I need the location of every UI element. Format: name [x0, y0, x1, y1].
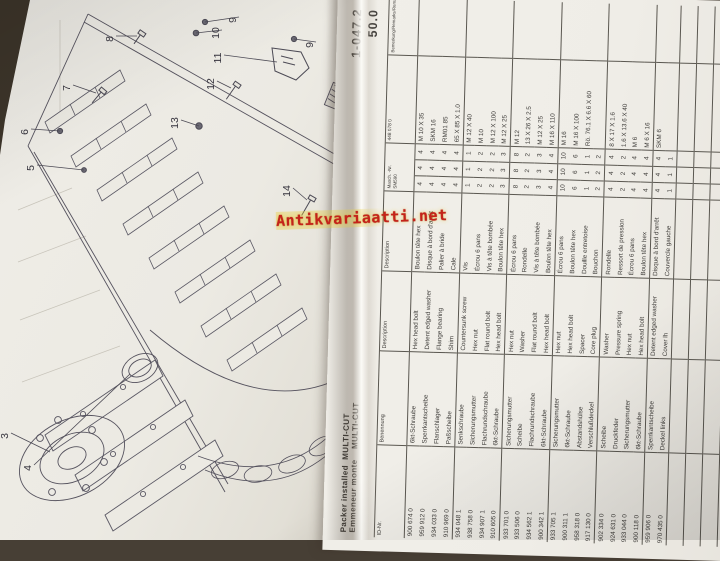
empty-cell [693, 168, 709, 184]
photo-of-open-parts-manual: 34567891011121314915 Packer installed MU… [0, 0, 720, 540]
part-qty-cell: 4 [426, 177, 438, 193]
part-qty-cell: 6 [569, 181, 581, 197]
header-english: Description [380, 271, 411, 352]
empty-cell [711, 152, 720, 168]
empty-cell [710, 184, 720, 200]
part-french-cell: Bouchon [590, 197, 603, 277]
callout-label: 9 [304, 42, 316, 48]
header-machine-number: Masch. -Nr. SM590 [384, 143, 414, 192]
part-french-cell: Boulon tête hex [495, 195, 508, 275]
part-qty-cell: 4 [450, 161, 461, 177]
part-qty-cell: 4 [652, 183, 664, 199]
part-qty-cell: 2 [474, 178, 486, 194]
empty-cell [700, 454, 719, 546]
part-qty-cell: 8 [509, 179, 521, 195]
empty-cell [669, 359, 688, 453]
part-remarks-cell [668, 5, 681, 63]
part-remarks-cell [549, 2, 562, 60]
callout-label: 7 [61, 85, 73, 91]
part-remarks-cell [644, 5, 657, 63]
part-qty-cell: 2 [593, 181, 604, 197]
parts-table: Packer installed MULTI-CUT Emmeneur mont… [333, 0, 720, 547]
part-qty-cell: 4 [641, 151, 652, 167]
part-qty-cell: 4 [427, 161, 439, 177]
empty-cell [697, 6, 715, 64]
empty-cell [694, 64, 712, 152]
empty-cell [691, 200, 709, 280]
part-qty-cell: 4 [545, 180, 556, 196]
part-qty-cell: 4 [605, 182, 617, 198]
part-qty-cell: 2 [593, 165, 604, 181]
right-page: Packer installed MULTI-CUT Emmeneur mont… [322, 0, 720, 561]
part-qty-cell: 10 [557, 164, 569, 180]
part-english-cell: Core plug [588, 277, 601, 357]
callout-label: 4 [22, 465, 34, 471]
callout-10: 10 [196, 27, 222, 39]
part-french-cell: Couvercle gauche [662, 199, 675, 279]
part-qty-cell: 1 [664, 183, 675, 199]
part-qty-cell: 4 [628, 182, 640, 198]
header-id: ID-Nr. [375, 445, 407, 538]
part-qty-cell: 4 [605, 166, 617, 182]
callout-label: 11 [212, 52, 224, 63]
empty-cell [705, 280, 720, 360]
left-page: 34567891011121314915 [0, 0, 368, 540]
part-qty-cell: 6 [569, 165, 581, 181]
header-dimension: 448 078 0 [386, 55, 417, 144]
empty-cell [677, 152, 693, 168]
part-qty-cell: 3 [498, 163, 509, 179]
callout-label: 8 [104, 36, 116, 42]
part-qty-cell: 2 [474, 162, 486, 178]
callout-label: 12 [205, 78, 217, 90]
empty-cell [671, 279, 689, 359]
empty-cell [676, 168, 692, 184]
empty-cell [714, 7, 720, 65]
exploded-diagram: 34567891011121314915 [0, 0, 368, 540]
part-qty-cell: 4 [439, 145, 451, 161]
part-english-cell: Hex head bolt [636, 278, 649, 358]
empty-cell [677, 64, 695, 152]
part-qty-cell: 2 [486, 162, 498, 178]
part-qty-cell: 4 [641, 167, 652, 183]
part-english-cell: Shim [446, 273, 459, 353]
part-english-cell: Cover lh [660, 279, 673, 359]
part-qty-cell: 4 [629, 166, 641, 182]
part-qty-cell: 2 [475, 146, 487, 162]
header-german: Benennung [377, 351, 409, 446]
callout-13: 13 [169, 117, 199, 129]
callout-label: 13 [169, 117, 181, 129]
part-qty-cell: 4 [605, 150, 617, 166]
empty-cell [688, 280, 706, 360]
part-qty-cell: 3 [498, 147, 509, 163]
part-qty-cell: 1 [581, 165, 593, 181]
part-qty-cell: 4 [640, 183, 651, 199]
part-qty-cell: 1 [581, 181, 593, 197]
part-qty-cell: 4 [653, 167, 665, 183]
part-english-cell: Hex head bolt [493, 275, 506, 355]
empty-cell [683, 454, 702, 546]
part-remarks-cell [596, 3, 609, 61]
part-qty-cell: 3 [498, 179, 509, 195]
callout-14: 14 [281, 185, 307, 200]
part-qty-cell: 2 [486, 178, 498, 194]
part-qty-cell: 2 [617, 150, 629, 166]
part-qty-cell: 8 [510, 147, 522, 163]
empty-cell [676, 184, 692, 200]
empty-cell [686, 360, 705, 454]
part-qty-cell: 4 [415, 144, 427, 160]
empty-cell [666, 453, 685, 545]
part-remarks-cell [454, 0, 467, 58]
empty-cell [694, 152, 710, 168]
part-qty-cell: 1 [665, 151, 676, 167]
part-english-cell: Hex head bolt [541, 276, 554, 356]
part-qty-cell: 6 [570, 149, 582, 165]
empty-cell [711, 65, 720, 153]
part-qty-cell: 1 [462, 162, 474, 178]
part-qty-cell: 4 [546, 164, 557, 180]
part-qty-cell: 1 [462, 178, 474, 194]
empty-cell [708, 200, 720, 280]
callout-label: 5 [25, 165, 37, 171]
callout-9: 9 [205, 17, 239, 23]
part-qty-cell: 4 [427, 145, 439, 161]
part-remarks-cell [501, 1, 514, 59]
part-qty-cell: 8 [510, 163, 522, 179]
part-qty-cell: 4 [414, 176, 426, 192]
part-qty-cell: 2 [521, 179, 533, 195]
part-qty-cell: 4 [653, 151, 665, 167]
empty-cell [703, 360, 720, 454]
callout-label: 6 [19, 129, 31, 135]
callout-9: 9 [294, 39, 316, 48]
part-qty-cell: 4 [415, 160, 427, 176]
machine-model-label: SM590 [392, 144, 399, 189]
callout-label: 10 [210, 27, 222, 39]
part-qty-cell: 4 [439, 161, 451, 177]
empty-cell [710, 168, 720, 184]
parts-rows: 900 674 06kt-SchraubeHex head boltBoulon… [405, 0, 720, 547]
part-french-cell: Cale [448, 193, 461, 273]
part-qty-cell: 4 [451, 145, 462, 161]
callout-11: 11 [212, 52, 277, 63]
empty-cell [693, 184, 709, 200]
empty-cell [680, 6, 698, 64]
part-qty-cell: 4 [629, 150, 641, 166]
part-qty-cell: 3 [533, 180, 545, 196]
part-qty-cell: 1 [664, 167, 675, 183]
part-french-cell: Boulon tête hex [543, 196, 556, 276]
callout-label: 9 [227, 17, 239, 23]
part-qty-cell: 3 [534, 148, 546, 164]
header-remarks: Bemerkung/Remarks/Remarque [388, 0, 419, 56]
part-qty-cell: 10 [557, 180, 569, 196]
header-french: Description [382, 191, 413, 272]
part-qty-cell: 2 [487, 146, 499, 162]
part-qty-cell: 1 [582, 149, 594, 165]
table-title-block: Packer installed MULTI-CUT Emmeneur mont… [333, 266, 382, 537]
part-qty-cell: 2 [616, 182, 628, 198]
part-qty-cell: 2 [594, 149, 605, 165]
part-qty-cell: 4 [546, 148, 557, 164]
packer-fins [45, 70, 307, 531]
part-qty-cell: 4 [438, 177, 450, 193]
callout-label: 14 [281, 185, 293, 197]
part-qty-cell: 1 [463, 146, 475, 162]
part-qty-cell: 3 [534, 164, 546, 180]
part-french-cell: Boulon tête hex [638, 199, 651, 279]
callout-label: 3 [0, 433, 11, 439]
construction-lines [18, 20, 120, 382]
part-qty-cell: 2 [617, 166, 629, 182]
part-qty-cell: 2 [522, 163, 534, 179]
part-qty-cell: 4 [450, 177, 461, 193]
empty-cell [674, 200, 692, 280]
part-qty-cell: 2 [522, 147, 534, 163]
part-qty-cell: 10 [558, 148, 570, 164]
